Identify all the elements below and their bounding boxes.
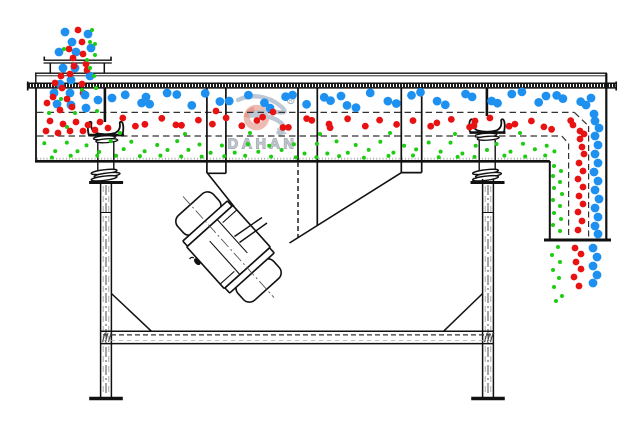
svg-text:R: R bbox=[289, 99, 294, 105]
svg-text:DAHAN: DAHAN bbox=[228, 137, 298, 153]
